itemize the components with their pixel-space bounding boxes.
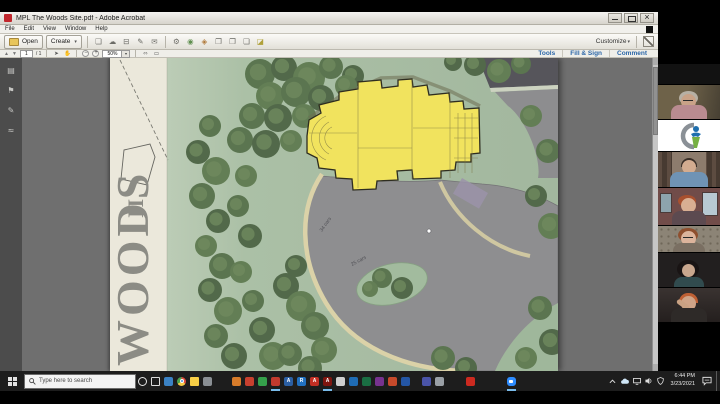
comment-cloud-icon[interactable]: ◉ xyxy=(185,36,196,48)
search-input[interactable]: Type here to search xyxy=(24,374,136,389)
speaker-icon[interactable] xyxy=(645,377,653,385)
sign-icon[interactable]: ✎ xyxy=(135,36,146,48)
task-view-icon[interactable] xyxy=(149,371,162,391)
gear-icon[interactable]: ⚙ xyxy=(171,36,182,48)
zoom-level-value[interactable]: 50% xyxy=(102,50,122,58)
participant-video-4[interactable] xyxy=(658,225,720,252)
clock-time: 6:44 PM xyxy=(671,373,695,381)
ringcentral-icon[interactable]: R xyxy=(295,371,308,391)
menu-window[interactable]: Window xyxy=(65,26,86,32)
file-explorer-icon[interactable] xyxy=(188,371,201,391)
store-icon[interactable] xyxy=(201,371,214,391)
previous-page-icon[interactable]: ▲ xyxy=(4,51,9,57)
participant-video-6[interactable] xyxy=(658,287,720,322)
page-total-label: / 1 xyxy=(36,51,42,57)
acrobat-dc-icon[interactable]: A xyxy=(321,371,334,391)
clock-date: 3/23/2021 xyxy=(671,381,695,389)
create-button[interactable]: Create xyxy=(46,35,82,49)
zoom-icon[interactable] xyxy=(505,371,518,391)
window-title: MPL The Woods Site.pdf - Adobe Acrobat xyxy=(16,15,145,22)
page-number-input[interactable]: 1 xyxy=(20,50,33,58)
onenote-icon[interactable] xyxy=(373,371,386,391)
zoom-level-control[interactable]: 50% ▾ xyxy=(102,50,130,58)
zoom-out-icon[interactable]: − xyxy=(82,50,89,57)
tab-tools[interactable]: Tools xyxy=(531,50,562,57)
print-icon[interactable]: ⊟ xyxy=(121,36,132,48)
acrobat-icon[interactable]: A xyxy=(308,371,321,391)
next-page-icon[interactable]: ▼ xyxy=(12,51,17,57)
app-slate-icon[interactable] xyxy=(433,371,446,391)
windows-logo-icon xyxy=(8,377,17,386)
document-canvas[interactable]: WOODS II 34 cars 25 cars xyxy=(22,58,652,371)
search-icon xyxy=(29,378,36,385)
highlight-icon[interactable]: ◪ xyxy=(255,36,266,48)
menu-edit[interactable]: Edit xyxy=(24,26,34,32)
app-blue-icon[interactable]: A xyxy=(282,371,295,391)
customize-button[interactable]: Customize xyxy=(596,38,630,45)
hand-tool-icon[interactable]: ✋ xyxy=(63,51,71,57)
signatures-icon[interactable]: ≈ xyxy=(5,125,17,136)
security-shield-icon[interactable] xyxy=(657,377,664,385)
screen: MPL The Woods Site.pdf - Adobe Acrobat F… xyxy=(0,0,720,404)
app-red-icon[interactable] xyxy=(269,371,282,391)
outlook-icon[interactable] xyxy=(347,371,360,391)
doc-attach-icon[interactable]: ❐ xyxy=(213,36,224,48)
tab-comment[interactable]: Comment xyxy=(609,50,654,57)
taskbar-app-icons: ARAA xyxy=(136,371,518,391)
action-center-icon[interactable] xyxy=(702,376,712,386)
main-toolbar: Open Create ❏ ☁ ⊟ ✎ ✉ ⚙ ◉ ◈ ❐ ❐ ❏ ◪ Cust… xyxy=(0,34,658,50)
navigation-toolbar: ▲ ▼ 1 / 1 ➤ ✋ − + 50% ▾ ⬄ ▭ Tools Fill &… xyxy=(0,50,658,58)
minimize-button[interactable] xyxy=(608,13,622,23)
open-button[interactable]: Open xyxy=(4,35,43,49)
tab-fill-sign[interactable]: Fill & Sign xyxy=(562,50,609,57)
save-icon[interactable]: ❏ xyxy=(93,36,104,48)
participant-video-2[interactable] xyxy=(658,151,720,187)
powerpoint-icon[interactable] xyxy=(386,371,399,391)
teams-icon[interactable] xyxy=(420,371,433,391)
participant-video-1[interactable] xyxy=(658,84,720,119)
site-plan-page: WOODS II 34 cars 25 cars xyxy=(110,58,558,371)
tray-expand-icon[interactable] xyxy=(609,378,616,385)
navigation-pane: ▤ ⚑ ✎ ≈ xyxy=(0,58,22,371)
select-tool-icon[interactable]: ➤ xyxy=(52,51,60,57)
page-thumbnails-icon[interactable]: ▤ xyxy=(5,65,17,76)
doc-export-icon[interactable]: ❐ xyxy=(227,36,238,48)
participant-strip xyxy=(658,12,720,371)
library-logo xyxy=(658,120,720,151)
app-green-icon[interactable] xyxy=(256,371,269,391)
participant-video-3[interactable] xyxy=(658,187,720,225)
taskbar: Type here to search ARAA 6:44 PM xyxy=(0,371,720,391)
start-button[interactable] xyxy=(0,371,24,391)
menu-file[interactable]: File xyxy=(5,26,15,32)
onedrive-cloud-icon[interactable] xyxy=(620,378,629,385)
pdf-red-icon[interactable] xyxy=(243,371,256,391)
show-desktop-button[interactable] xyxy=(716,371,720,391)
maximize-button[interactable] xyxy=(624,13,638,23)
participant-video-empty-1[interactable] xyxy=(658,63,720,84)
chrome-icon[interactable] xyxy=(175,371,188,391)
menu-view[interactable]: View xyxy=(43,26,56,32)
stamp-icon[interactable]: ◈ xyxy=(199,36,210,48)
app-orange-icon[interactable] xyxy=(230,371,243,391)
close-button[interactable] xyxy=(640,13,654,23)
bookmarks-icon[interactable]: ⚑ xyxy=(5,85,17,96)
zoom-dropdown-icon[interactable]: ▾ xyxy=(122,50,130,58)
search-placeholder: Type here to search xyxy=(39,378,92,384)
edge-icon[interactable] xyxy=(162,371,175,391)
fit-width-icon[interactable]: ⬄ xyxy=(141,51,149,57)
title-bar[interactable]: MPL The Woods Site.pdf - Adobe Acrobat xyxy=(0,12,658,25)
app-gray-icon[interactable] xyxy=(334,371,347,391)
participant-video-empty-2[interactable] xyxy=(658,322,720,371)
mouse-cursor-dot xyxy=(427,229,431,233)
taskbar-clock[interactable]: 6:44 PM 3/23/2021 xyxy=(671,373,695,389)
fit-page-icon[interactable]: ▭ xyxy=(152,51,160,57)
word-icon[interactable] xyxy=(399,371,412,391)
panel-toggle-icon[interactable] xyxy=(646,26,653,33)
cortana-icon[interactable] xyxy=(136,371,149,391)
excel-icon[interactable] xyxy=(360,371,373,391)
doc-new-icon[interactable]: ❏ xyxy=(241,36,252,48)
acrobat-window: MPL The Woods Site.pdf - Adobe Acrobat F… xyxy=(0,12,658,371)
zoom-in-icon[interactable]: + xyxy=(92,50,99,57)
plan-title-ii: II xyxy=(123,197,148,218)
participant-video-logo[interactable] xyxy=(658,119,720,151)
acrobat-app-icon xyxy=(4,14,12,22)
system-tray: 6:44 PM 3/23/2021 xyxy=(609,371,720,391)
fullscreen-icon[interactable] xyxy=(643,36,654,47)
participant-video-5[interactable] xyxy=(658,252,720,287)
cloud-upload-icon[interactable]: ☁ xyxy=(107,36,118,48)
open-folder-icon xyxy=(9,38,19,46)
acrobat-reader-icon[interactable] xyxy=(464,371,477,391)
email-icon[interactable]: ✉ xyxy=(149,36,160,48)
attachments-icon[interactable]: ✎ xyxy=(5,105,17,116)
work-area: ▤ ⚑ ✎ ≈ xyxy=(0,58,658,371)
display-icon[interactable] xyxy=(633,378,641,385)
menu-help[interactable]: Help xyxy=(95,26,107,32)
menu-bar: File Edit View Window Help xyxy=(0,25,658,34)
